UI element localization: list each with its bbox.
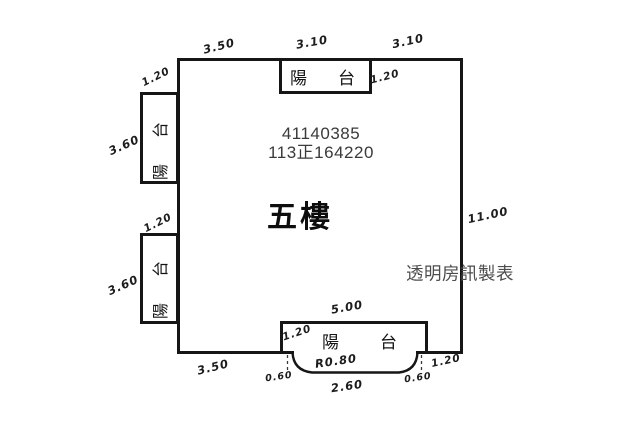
floor-title: 五樓 bbox=[267, 192, 333, 236]
floorplan-canvas: 41140385 113正164220 五樓 透明房訊製表 陽台 陽台 陽台 陽… bbox=[0, 0, 640, 442]
watermark-text: 透明房訊製表 bbox=[406, 261, 514, 286]
serial-block: 41140385 113正164220 bbox=[268, 124, 374, 162]
serial-number: 41140385 bbox=[268, 124, 374, 143]
document-number: 113正164220 bbox=[268, 143, 374, 162]
left-upper-balcony-label: 陽台 bbox=[147, 96, 171, 180]
left-lower-balcony-label: 陽台 bbox=[147, 235, 171, 319]
bottom-balcony-label: 陽台 bbox=[322, 328, 438, 353]
